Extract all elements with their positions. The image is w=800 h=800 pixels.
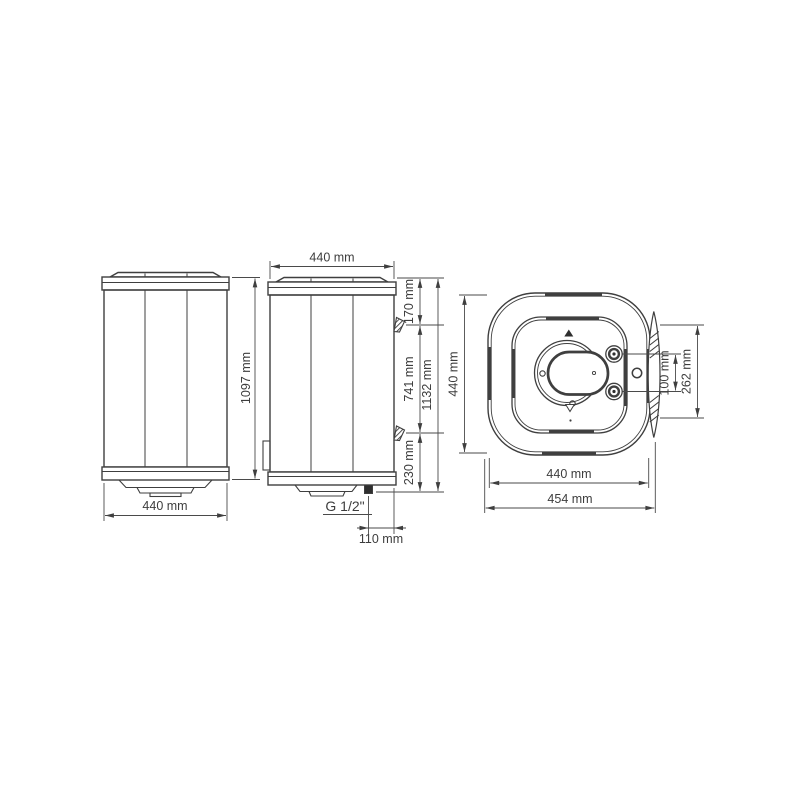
top-bracket-span-dim-label: 262 mm [680, 349, 694, 394]
top-width-dim-label: 440 mm [546, 467, 591, 481]
heating-flange [548, 352, 608, 395]
center-dot [569, 419, 571, 421]
side-view [263, 278, 405, 497]
water-heater-dimension-drawing: 1097 mm 440 mm [0, 0, 800, 800]
front-height-dim-label: 1097 mm [239, 352, 253, 404]
top-overall-width-dim-label: 454 mm [547, 492, 592, 506]
orientation-mark-down [566, 405, 575, 412]
mounting-bracket-lower [394, 426, 405, 441]
flange-bolt [540, 371, 545, 376]
dimension-drawing-page: 1097 mm 440 mm [0, 0, 800, 800]
front-view-dimensions [104, 278, 260, 522]
side-230-dim-label: 230 mm [402, 440, 416, 485]
orientation-mark-up [564, 330, 573, 337]
tank-bottom-step [295, 485, 357, 492]
pipe-connection-lower [606, 383, 622, 399]
tank-bottom-rim [102, 467, 229, 480]
pipe-thread-label: G 1/2" [325, 498, 364, 514]
side-1132-dim-label: 1132 mm [420, 359, 434, 410]
tank-body [270, 295, 394, 472]
side-cover-box [263, 441, 270, 470]
side-view-dimensions [270, 261, 444, 534]
top-pipe-spacing-dim-label: 100 mm [658, 350, 672, 395]
top-depth-dim-label: 440 mm [447, 351, 461, 396]
tank-body [104, 290, 227, 467]
side-110-dim-label: 110 mm [359, 532, 403, 546]
top-view [488, 293, 660, 455]
tank-bottom-step [309, 492, 345, 497]
cable-entry-hole [632, 368, 641, 377]
tank-bottom-step [150, 493, 181, 497]
tank-bottom-step [137, 488, 194, 494]
front-width-dim-label: 440 mm [142, 499, 187, 513]
front-view [102, 273, 229, 497]
pipe-connection-upper [606, 346, 622, 362]
pipe-fitting [365, 485, 373, 494]
tank-top-rim [102, 277, 229, 290]
side-170-dim-label: 170 mm [402, 279, 416, 324]
tank-top-rim [268, 282, 396, 295]
side-741-dim-label: 741 mm [402, 356, 416, 401]
tank-bottom-step [119, 480, 212, 488]
side-width-dim-label: 440 mm [309, 251, 354, 265]
tank-bottom-rim [268, 472, 396, 485]
